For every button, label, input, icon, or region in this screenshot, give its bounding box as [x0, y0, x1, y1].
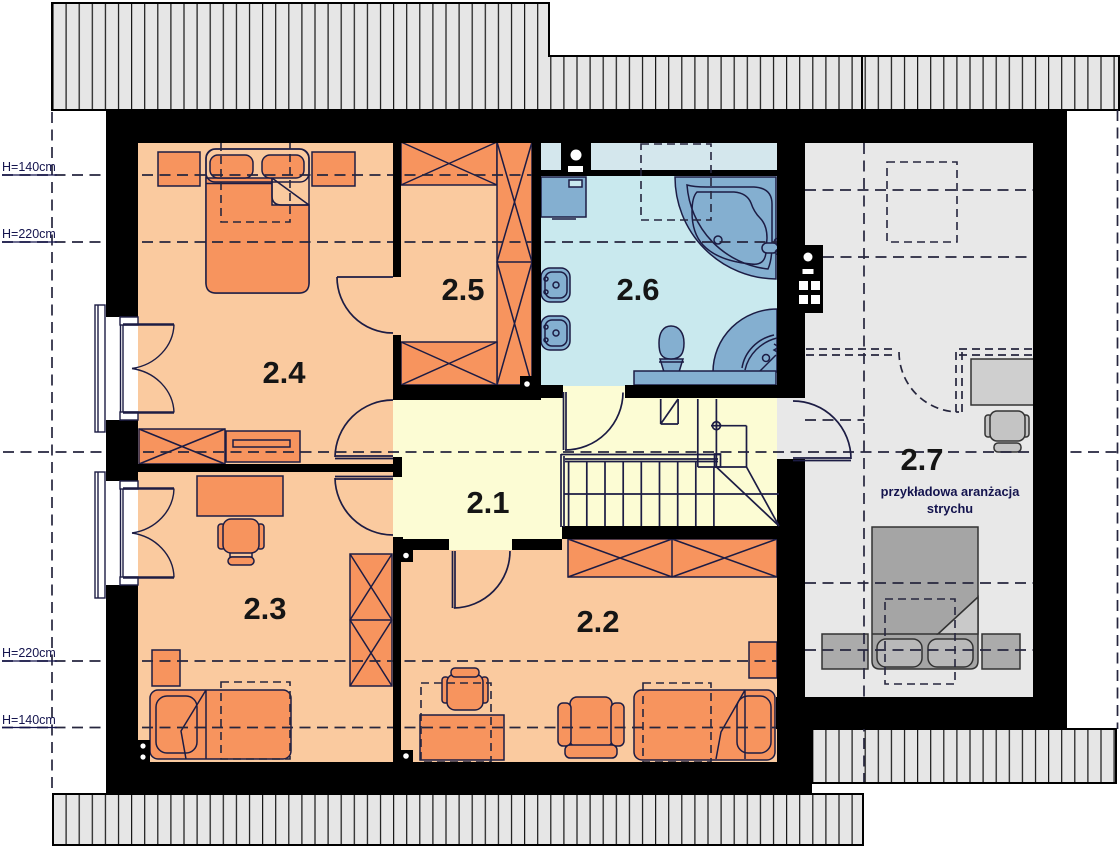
svg-text:2.3: 2.3	[243, 591, 286, 626]
svg-text:2.6: 2.6	[616, 272, 659, 307]
svg-text:2.2: 2.2	[576, 604, 619, 639]
svg-text:2.4: 2.4	[262, 355, 306, 390]
svg-text:2.7: 2.7	[900, 442, 943, 477]
svg-text:H=140cm: H=140cm	[2, 713, 56, 727]
svg-text:H=140cm: H=140cm	[2, 160, 56, 174]
svg-text:H=220cm: H=220cm	[2, 227, 56, 241]
svg-text:przykładowa aranżacja: przykładowa aranżacja	[881, 484, 1021, 499]
svg-text:2.5: 2.5	[441, 272, 484, 307]
svg-text:strychu: strychu	[927, 501, 973, 516]
svg-text:2.1: 2.1	[466, 485, 509, 520]
svg-text:H=220cm: H=220cm	[2, 646, 56, 660]
